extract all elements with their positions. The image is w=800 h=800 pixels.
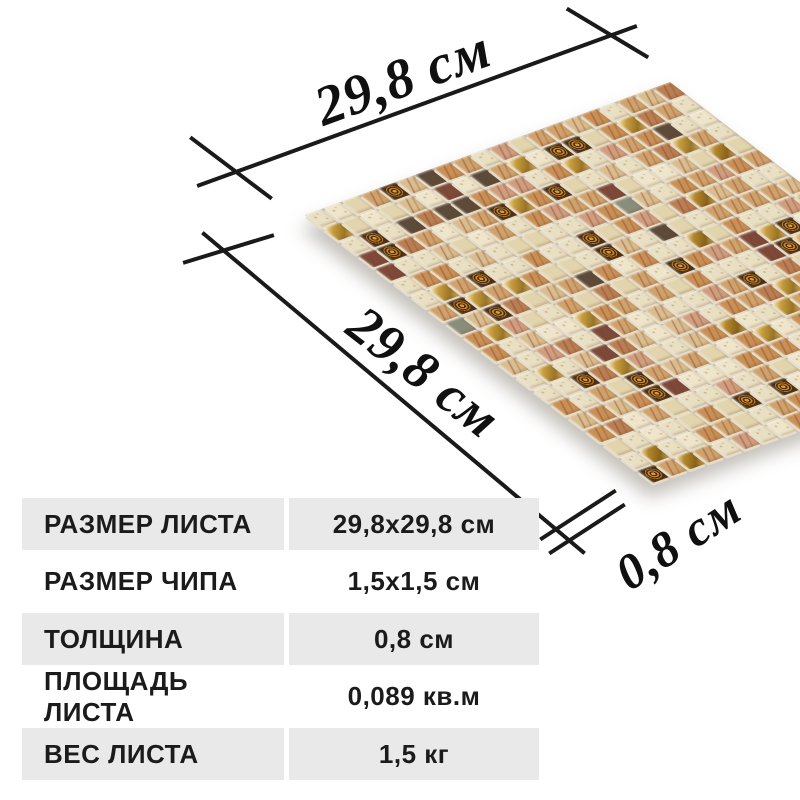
mosaic-chip: [753, 284, 786, 302]
mosaic-chip: [693, 425, 726, 443]
mosaic-chip: [700, 263, 733, 281]
mosaic-chip: [620, 431, 653, 449]
mosaic-chip: [576, 209, 609, 227]
mosaic-chip: [606, 357, 639, 375]
mosaic-chip: [702, 203, 735, 221]
mosaic-chip: [322, 222, 355, 240]
mosaic-chip: [771, 277, 800, 295]
mosaic-chip: [500, 297, 533, 315]
mosaic-chip: [739, 190, 772, 208]
mosaic-chip: [542, 162, 575, 180]
mosaic-chip: [751, 344, 784, 362]
mosaic-chip: [698, 304, 731, 322]
mosaic-chip: [540, 203, 573, 221]
mosaic-chip: [729, 431, 762, 449]
mosaic-chip: [765, 418, 798, 436]
mosaic-chip: [715, 337, 748, 355]
mosaic-chip: [678, 351, 711, 369]
mosaic-chip: [550, 397, 583, 415]
mosaic-chip: [710, 438, 743, 456]
mosaic-chip: [686, 169, 719, 187]
mosaic-chip: [682, 250, 715, 268]
spec-value-sheet-size: 29,8x29,8 см: [289, 498, 539, 550]
mosaic-chip: [639, 424, 672, 442]
mosaic-chip: [557, 236, 590, 254]
table-row: ВЕС ЛИСТА 1,5 кг: [22, 728, 539, 780]
mosaic-chip: [681, 290, 714, 308]
mosaic-chip: [575, 230, 608, 248]
mosaic-chip: [522, 189, 555, 207]
mosaic-chip: [467, 229, 500, 247]
mosaic-chip: [758, 163, 791, 181]
mosaic-chip: [626, 290, 659, 308]
mosaic-chip: [637, 465, 670, 483]
spec-label-sheet-weight: ВЕС ЛИСТА: [22, 728, 284, 780]
mosaic-chip: [623, 371, 656, 389]
mosaic-chip: [481, 323, 514, 341]
mosaic-chip: [697, 324, 730, 342]
mosaic-chip: [487, 162, 520, 180]
mosaic-chip: [573, 270, 606, 288]
mosaic-chip: [577, 169, 610, 187]
mosaic-chip: [587, 364, 620, 382]
mosaic-chip: [657, 418, 690, 436]
mosaic-chip: [632, 169, 665, 187]
mosaic-chip: [469, 169, 502, 187]
mosaic-chip: [556, 256, 589, 274]
mosaic-chip: [703, 183, 736, 201]
mosaic-chip: [628, 250, 661, 268]
mosaic-chip: [397, 176, 430, 194]
mosaic-chip: [704, 163, 737, 181]
mosaic-chip: [702, 223, 735, 241]
mosaic-chip: [767, 378, 800, 396]
mosaic-chip: [776, 176, 800, 194]
mosaic-chip: [755, 243, 788, 261]
mosaic-chip: [641, 384, 674, 402]
mosaic-chip: [711, 418, 744, 436]
mosaic-chip: [676, 391, 709, 409]
mosaic-chip: [597, 122, 630, 140]
mosaic-chip: [486, 203, 519, 221]
mosaic-chip: [585, 424, 618, 442]
mosaic-chip: [592, 243, 625, 261]
mosaic-chip: [411, 270, 444, 288]
mosaic-chip: [699, 284, 732, 302]
mosaic-chip: [683, 230, 716, 248]
mosaic-chip: [675, 431, 708, 449]
mosaic-chip: [713, 378, 746, 396]
mosaic-chip: [568, 391, 601, 409]
mosaic-chip: [643, 324, 676, 342]
mosaic-chip: [342, 196, 375, 214]
mosaic-chip: [647, 243, 680, 261]
mosaic-chip: [543, 122, 576, 140]
specs-table: РАЗМЕР ЛИСТА 29,8x29,8 см РАЗМЕР ЧИПА 1,…: [22, 498, 539, 780]
mosaic-chip: [722, 176, 755, 194]
mosaic-chip: [305, 209, 338, 227]
mosaic-chip: [772, 257, 800, 275]
thickness-dimension-label: 0,8 см: [605, 478, 752, 602]
mosaic-chip: [468, 189, 501, 207]
mosaic-chip: [648, 203, 681, 221]
mosaic-chip: [695, 384, 728, 402]
mosaic-chip: [792, 210, 800, 228]
mosaic-chip: [756, 223, 789, 241]
mosaic-chip: [483, 263, 516, 281]
mosaic-chip: [621, 411, 654, 429]
mosaic-chip: [669, 136, 702, 154]
mosaic-chip: [661, 317, 694, 335]
mosaic-chip: [449, 216, 482, 234]
mosaic-chip: [716, 297, 749, 315]
spec-label-sheet-size: РАЗМЕР ЛИСТА: [22, 498, 284, 550]
mosaic-chip: [559, 176, 592, 194]
mosaic-chip: [634, 109, 667, 127]
mosaic-chip: [718, 257, 751, 275]
mosaic-chip: [395, 216, 428, 234]
mosaic-chip: [662, 297, 695, 315]
mosaic-sheet: [305, 82, 800, 483]
mosaic-chip: [694, 404, 727, 422]
mosaic-chip: [553, 317, 586, 335]
mosaic-chip: [413, 209, 446, 227]
mosaic-chip: [596, 162, 629, 180]
mosaic-chip: [706, 122, 739, 140]
mosaic-chip: [541, 183, 574, 201]
mosaic-chip: [629, 230, 662, 248]
mosaic-chip: [660, 357, 693, 375]
mosaic-chip: [412, 249, 445, 267]
mosaic-chip: [359, 209, 392, 227]
mosaic-chip: [604, 397, 637, 415]
mosaic-chip: [605, 377, 638, 395]
mosaic-chip: [341, 216, 374, 234]
mosaic-chip: [465, 270, 498, 288]
mosaic-chip: [570, 350, 603, 368]
mosaic-chip: [789, 290, 800, 308]
mosaic-chip: [432, 182, 465, 200]
mosaic-chip: [630, 210, 663, 228]
mosaic-chip: [757, 203, 790, 221]
mosaic-chip: [701, 243, 734, 261]
mosaic-chip: [655, 458, 688, 476]
mosaic-chip: [415, 169, 448, 187]
mosaic-chip: [687, 149, 720, 167]
mosaic-chip: [617, 95, 650, 113]
mosaic-chip: [595, 183, 628, 201]
mosaic-chip: [598, 102, 631, 120]
mosaic-chip: [520, 250, 553, 268]
mosaic-chip: [677, 371, 710, 389]
mosaic-chip: [507, 135, 540, 153]
mosaic-chip: [470, 149, 503, 167]
mosaic-chip: [498, 337, 531, 355]
mosaic-chip: [431, 223, 464, 241]
mosaic-chip: [592, 263, 625, 281]
mosaic-chip: [429, 263, 462, 281]
mosaic-chip: [554, 297, 587, 315]
mosaic-chip: [375, 263, 408, 281]
mosaic-chip: [720, 216, 753, 234]
mosaic-chip: [603, 418, 636, 436]
width-dimension-tick-left: [189, 136, 273, 201]
mosaic-chip: [484, 243, 517, 261]
mosaic-chip: [594, 203, 627, 221]
mosaic-chip: [607, 317, 640, 335]
mosaic-chip: [635, 89, 668, 107]
mosaic-chip: [675, 411, 708, 429]
mosaic-chip: [590, 303, 623, 321]
mosaic-chip: [717, 277, 750, 295]
mosaic-chip: [579, 129, 612, 147]
mosaic-chip: [557, 216, 590, 234]
mosaic-chip: [644, 304, 677, 322]
mosaic-chip: [597, 142, 630, 160]
mosaic-chip: [680, 310, 713, 328]
mosaic-chip: [588, 344, 621, 362]
mosaic-chip: [625, 330, 658, 348]
width-dimension-label: 29,8 см: [306, 17, 499, 139]
mosaic-chip: [376, 243, 409, 261]
mosaic-chip: [774, 217, 800, 235]
mosaic-chip: [733, 331, 766, 349]
mosaic-chip: [770, 317, 800, 335]
mosaic-chip: [681, 270, 714, 288]
mosaic-chip: [791, 250, 800, 268]
mosaic-chip: [631, 189, 664, 207]
mosaic-chip: [522, 209, 555, 227]
mosaic-chip: [651, 142, 684, 160]
mosaic-chip: [626, 310, 659, 328]
mosaic-chip: [482, 303, 515, 321]
mosaic-chip: [665, 236, 698, 254]
mosaic-chip: [571, 330, 604, 348]
mosaic-chip: [591, 283, 624, 301]
mosaic-chip: [627, 270, 660, 288]
mosaic-chip: [650, 163, 683, 181]
mosaic-chip: [714, 357, 747, 375]
mosaic-chip: [641, 364, 674, 382]
mosaic-chip: [357, 249, 390, 267]
mosaic-chip: [735, 290, 768, 308]
mosaic-chip: [696, 364, 729, 382]
mosaic-chip: [647, 223, 680, 241]
mosaic-chip: [499, 317, 532, 335]
mosaic-chip: [722, 156, 755, 174]
mosaic-chip: [536, 303, 569, 321]
mosaic-chip: [560, 156, 593, 174]
mosaic-chip: [394, 236, 427, 254]
mosaic-chip: [640, 404, 673, 422]
mosaic-chip: [323, 202, 356, 220]
mosaic-chip: [606, 337, 639, 355]
mosaic-chip: [705, 143, 738, 161]
mosaic-chip: [609, 277, 642, 295]
mosaic-chip: [687, 129, 720, 147]
mosaic-chip: [732, 351, 765, 369]
mosaic-chip: [537, 283, 570, 301]
mosaic-chip: [666, 216, 699, 234]
mosaic-chip: [428, 283, 461, 301]
mosaic-chip: [754, 263, 787, 281]
mosaic-chip: [551, 377, 584, 395]
mosaic-chip: [674, 451, 707, 469]
mosaic-chip: [638, 445, 671, 463]
mosaic-chip: [632, 149, 665, 167]
mosaic-chip: [533, 364, 566, 382]
mosaic-chip: [378, 182, 411, 200]
mosaic-chip: [786, 351, 800, 369]
mosaic-chip: [784, 411, 800, 429]
mosaic-chip: [736, 270, 769, 288]
mosaic-chip: [340, 236, 373, 254]
mosaic-chip: [670, 116, 703, 134]
mosaic-chip: [562, 115, 595, 133]
mosaic-chip: [791, 230, 800, 248]
mosaic-chip: [734, 310, 767, 328]
mosaic-chip: [738, 210, 771, 228]
mosaic-chip: [487, 182, 520, 200]
mosaic-chip: [622, 391, 655, 409]
mosaic-chip: [664, 257, 697, 275]
mosaic-chip: [730, 411, 763, 429]
mosaic-chip: [463, 310, 496, 328]
mosaic-chip: [663, 277, 696, 295]
mosaic-chip: [534, 344, 567, 362]
mosaic-chip: [793, 190, 800, 208]
product-infographic: 29,8 см 29,8 см 0,8 см РАЗМЕР ЛИСТА 29,8…: [0, 0, 800, 800]
length-dimension-tick-top: [182, 233, 274, 265]
mosaic-chip: [430, 243, 463, 261]
mosaic-chip: [464, 290, 497, 308]
mosaic-chip: [574, 250, 607, 268]
mosaic-chip: [612, 216, 645, 234]
mosaic-chip: [447, 256, 480, 274]
mosaic-chip: [653, 82, 686, 100]
mosaic-chip: [649, 183, 682, 201]
mosaic-chip: [752, 304, 785, 322]
mosaic-chip: [785, 371, 800, 389]
mosaic-chip: [613, 176, 646, 194]
mosaic-chip: [652, 102, 685, 120]
mosaic-chip: [769, 337, 800, 355]
spec-label-sheet-area: ПЛОЩАДЬ ЛИСТА: [22, 671, 284, 723]
mosaic-chip: [610, 256, 643, 274]
mosaic-chip: [502, 256, 535, 274]
mosaic-chip: [737, 230, 770, 248]
mosaic-chip: [482, 283, 515, 301]
mosaic-chip: [537, 263, 570, 281]
mosaic-chip: [646, 263, 679, 281]
mosaic-chip: [450, 196, 483, 214]
mosaic-chip: [433, 162, 466, 180]
mosaic-chip: [466, 250, 499, 268]
mosaic-chip: [504, 196, 537, 214]
mosaic-chip: [768, 358, 800, 376]
mosaic-chip: [569, 371, 602, 389]
mosaic-chip: [467, 209, 500, 227]
mosaic-chip: [519, 270, 552, 288]
mosaic-chip: [608, 297, 641, 315]
mosaic-chip: [578, 149, 611, 167]
mosaic-chip: [485, 223, 518, 241]
mosaic-chip: [521, 229, 554, 247]
spec-value-sheet-weight: 1,5 кг: [289, 728, 539, 780]
mosaic-chip: [480, 344, 513, 362]
mosaic-chip: [730, 391, 763, 409]
mosaic-chip: [775, 196, 800, 214]
mosaic-chip: [679, 330, 712, 348]
mosaic-chip: [532, 384, 565, 402]
mosaic-chip: [642, 344, 675, 362]
mosaic-chip: [488, 142, 521, 160]
mosaic-chip: [661, 337, 694, 355]
length-dimension-label: 29,8 см: [336, 293, 513, 450]
mosaic-chip: [392, 276, 425, 294]
mosaic-chip: [516, 350, 549, 368]
mosaic-chip: [659, 377, 692, 395]
mosaic-chip: [773, 237, 800, 255]
mosaic-chip: [747, 425, 780, 443]
spec-value-sheet-area: 0,089 кв.м: [289, 671, 539, 723]
mosaic-chip: [515, 370, 548, 388]
mosaic-chip: [712, 398, 745, 416]
mosaic-chip: [667, 176, 700, 194]
mosaic-chip: [751, 324, 784, 342]
mosaic-chip: [757, 183, 790, 201]
spec-label-thickness: ТОЛЩИНА: [22, 613, 284, 665]
mosaic-chip: [788, 311, 800, 329]
mosaic-chip: [785, 391, 800, 409]
mosaic-chip: [750, 364, 783, 382]
mosaic-chip: [749, 384, 782, 402]
mosaic-chip: [741, 149, 774, 167]
mosaic-chip: [723, 136, 756, 154]
mosaic-chip: [551, 357, 584, 375]
mosaic-chip: [501, 276, 534, 294]
mosaic-chip: [616, 116, 649, 134]
mosaic-chip: [414, 189, 447, 207]
mosaic-chip: [787, 331, 800, 349]
mosaic-chip: [497, 357, 530, 375]
mosaic-chip: [731, 371, 764, 389]
mosaic-chip: [719, 237, 752, 255]
mosaic-chip: [539, 223, 572, 241]
table-row: РАЗМЕР ЛИСТА 29,8x29,8 см: [22, 498, 539, 550]
mosaic-chip: [393, 256, 426, 274]
mosaic-chip: [652, 122, 685, 140]
mosaic-chip: [572, 290, 605, 308]
table-row: ТОЛЩИНА 0,8 см: [22, 613, 539, 665]
mosaic-chip: [620, 451, 653, 469]
mosaic-chip: [538, 243, 571, 261]
mosaic-chip: [503, 216, 536, 234]
mosaic-chip: [766, 398, 799, 416]
mosaic-chip: [615, 136, 648, 154]
mosaic-chip: [432, 202, 465, 220]
mosaic-chip: [658, 398, 691, 416]
mosaic-chip: [567, 411, 600, 429]
mosaic-chip: [396, 196, 429, 214]
mosaic-chip: [685, 189, 718, 207]
mosaic-chip: [602, 438, 635, 456]
mosaic-chip: [611, 236, 644, 254]
mosaic-chip: [688, 109, 721, 127]
mosaic-chip: [684, 210, 717, 228]
mosaic-chip: [586, 404, 619, 422]
mosaic-chip: [506, 156, 539, 174]
